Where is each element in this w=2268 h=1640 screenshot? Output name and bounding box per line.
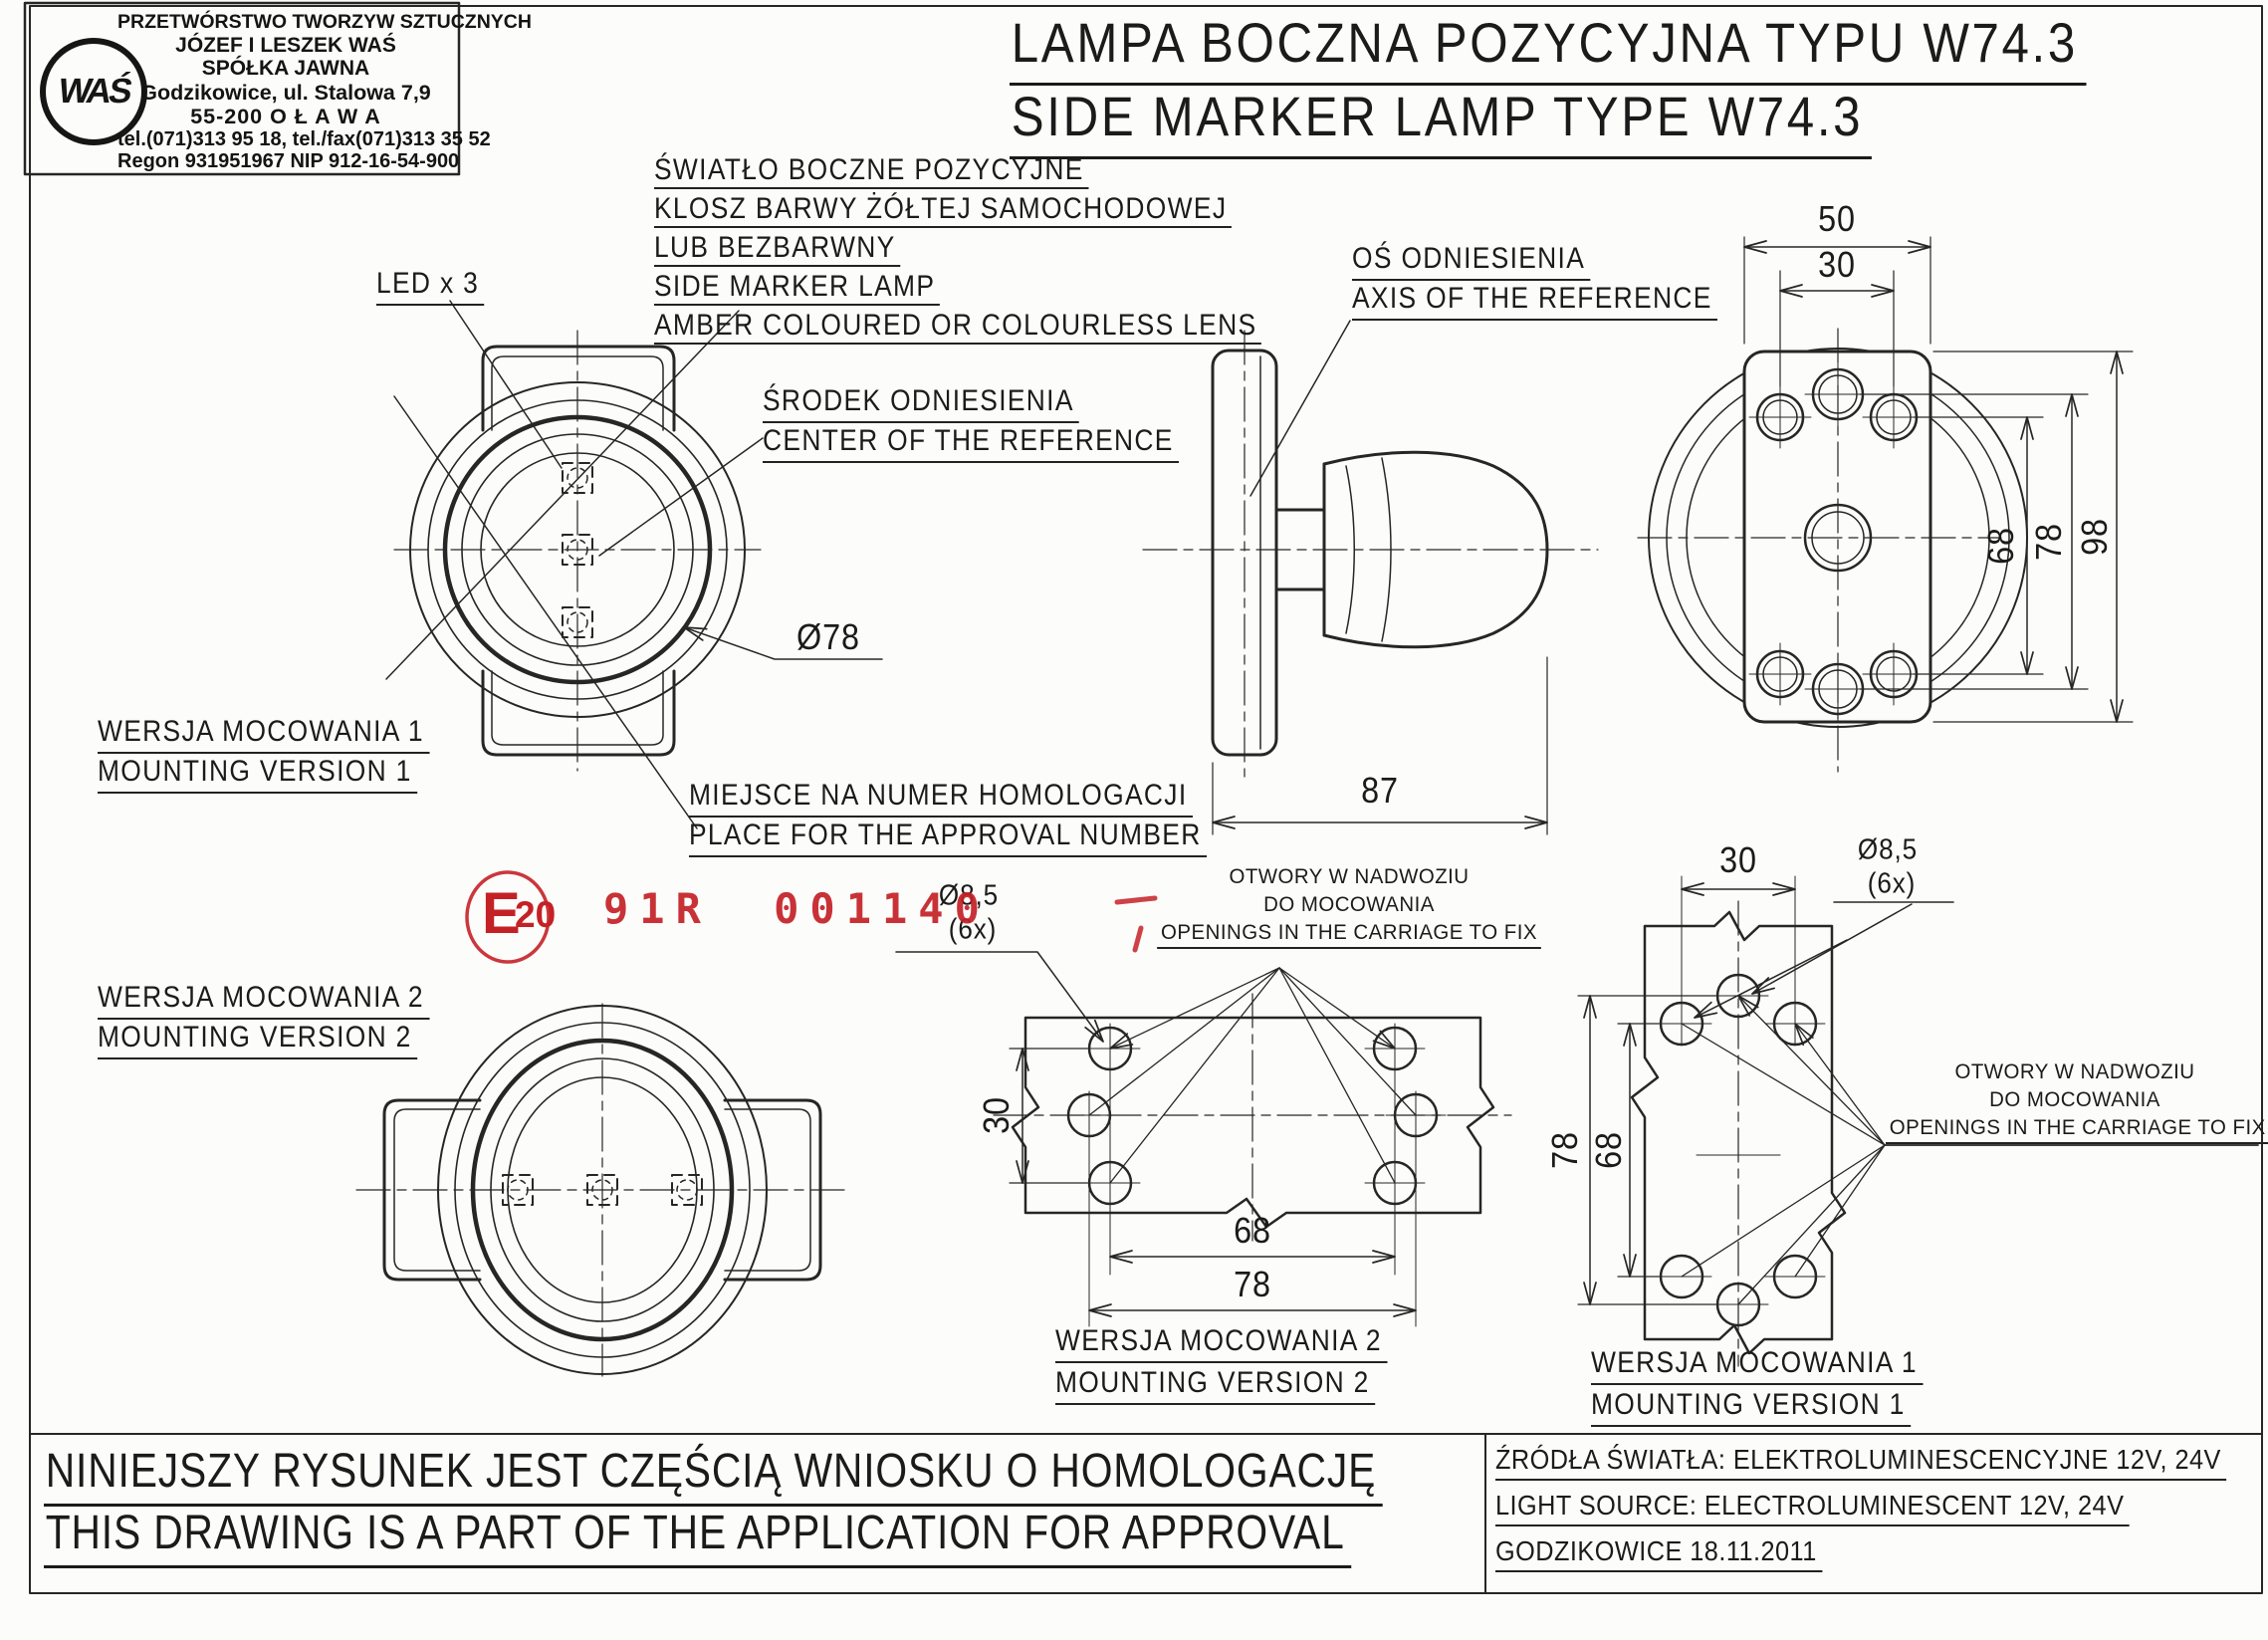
openings-v2-pl2: DO MOCOWANIA xyxy=(1155,890,1543,918)
page-title-en: SIDE MARKER LAMP TYPE W74.3 xyxy=(1010,84,1872,159)
lens-note-en2: AMBER COLOURED OR COLOURLESS LENS xyxy=(654,311,1261,345)
mounting-v1-label-pl: WERSJA MOCOWANIA 1 xyxy=(98,715,429,754)
dim-back-98: 98 xyxy=(2074,518,2116,556)
footer-light-source-en: LIGHT SOURCE: ELECTROLUMINESCENT 12V, 24… xyxy=(1495,1490,2130,1526)
footer-light-source-pl: ŹRÓDŁA ŚWIATŁA: ELEKTROLUMINESCENCYJNE 1… xyxy=(1495,1444,2226,1481)
axis-label-pl: OŚ ODNIESIENIA xyxy=(1352,242,1590,281)
footer-statement-pl: NINIEJSZY RYSUNEK JEST CZĘŚCIĄ WNIOSKU O… xyxy=(44,1444,1383,1507)
approval-place-label-en: PLACE FOR THE APPROVAL NUMBER xyxy=(689,819,1207,857)
stamp-e-number: 20 xyxy=(515,894,556,936)
company-name-line1: PRZETWÓRSTWO TWORZYW SZTUCZNYCH xyxy=(117,12,454,34)
axis-label-en: AXIS OF THE REFERENCE xyxy=(1352,282,1717,321)
mounting-v2-caption-en: MOUNTING VERSION 2 xyxy=(1055,1366,1375,1405)
company-address-line1: Godzikowice, ul. Stalowa 7,9 xyxy=(117,81,454,105)
lens-note-pl3: LUB BEZBARWNY xyxy=(654,233,900,267)
dim-side-87: 87 xyxy=(1361,770,1399,812)
mounting-v1-label-en: MOUNTING VERSION 1 xyxy=(98,755,417,794)
hole-pattern-v2 xyxy=(896,952,1511,1326)
mounting-v1-caption-pl: WERSJA MOCOWANIA 1 xyxy=(1591,1346,1923,1385)
lens-note-en1: SIDE MARKER LAMP xyxy=(654,272,940,306)
openings-label-v1: OTWORY W NADWOZIU DO MOCOWANIA OPENINGS … xyxy=(1886,1057,2264,1144)
mounting-v2-caption-pl: WERSJA MOCOWANIA 2 xyxy=(1055,1324,1387,1363)
dim-back-50: 50 xyxy=(1818,198,1856,240)
drawing-sheet: WAŚ PRZETWÓRSTWO TWORZYW SZTUCZNYCH JÓZE… xyxy=(0,0,2268,1640)
front-view-v2 xyxy=(356,1004,848,1376)
dim-v1-count: (6x) xyxy=(1868,868,1917,901)
dim-v1-30: 30 xyxy=(1719,839,1757,881)
mounting-v2-label-en: MOUNTING VERSION 2 xyxy=(98,1021,417,1059)
center-label-pl: ŚRODEK ODNIESIENIA xyxy=(763,384,1079,423)
openings-v1-pl2: DO MOCOWANIA xyxy=(1886,1085,2264,1113)
lens-note: ŚWIATŁO BOCZNE POZYCYJNE KLOSZ BARWY ŻÓŁ… xyxy=(654,155,1261,350)
company-info: PRZETWÓRSTWO TWORZYW SZTUCZNYCH JÓZEF I … xyxy=(117,12,454,173)
dim-back-68: 68 xyxy=(1980,527,2022,565)
footer-statement-en: THIS DRAWING IS A PART OF THE APPLICATIO… xyxy=(44,1506,1351,1568)
leader-fan-v1 xyxy=(1682,996,2258,1304)
dim-back-78: 78 xyxy=(2028,523,2070,561)
company-name-line3: SPÓŁKA JAWNA xyxy=(117,57,454,81)
company-name-line2: JÓZEF I LESZEK WAŚ xyxy=(117,34,454,58)
openings-v1-pl1: OTWORY W NADWOZIU xyxy=(1886,1057,2264,1085)
stamp-approval-code: 91R 001140 xyxy=(603,884,991,933)
company-address-line2: 55-200 O Ł A W A xyxy=(117,105,454,128)
mounting-v1-caption-en: MOUNTING VERSION 1 xyxy=(1591,1388,1911,1427)
company-phone: tel.(071)313 95 18, tel./fax(071)313 35 … xyxy=(117,128,454,150)
led-label: LED x 3 xyxy=(376,267,484,306)
company-ids: Regon 931951967 NIP 912-16-54-900 xyxy=(117,150,454,172)
openings-v1-en: OPENINGS IN THE CARRIAGE TO FIX xyxy=(1886,1113,2268,1144)
dim-v2-30: 30 xyxy=(976,1096,1018,1134)
openings-label-v2: OTWORY W NADWOZIU DO MOCOWANIA OPENINGS … xyxy=(1155,862,1543,949)
page-title-pl: LAMPA BOCZNA POZYCYJNA TYPU W74.3 xyxy=(1010,10,2087,86)
mounting-v2-label-pl: WERSJA MOCOWANIA 2 xyxy=(98,981,429,1020)
center-label-en: CENTER OF THE REFERENCE xyxy=(763,424,1179,463)
dim-v2-68: 68 xyxy=(1234,1210,1271,1252)
dim-v1-68: 68 xyxy=(1588,1131,1630,1169)
lens-note-pl2: KLOSZ BARWY ŻÓŁTEJ SAMOCHODOWEJ xyxy=(654,194,1232,228)
dim-v1-dia85: Ø8,5 xyxy=(1858,834,1918,867)
side-view xyxy=(1143,321,1598,834)
dim-v1-78: 78 xyxy=(1544,1131,1586,1169)
openings-v2-pl1: OTWORY W NADWOZIU xyxy=(1155,862,1543,890)
approval-place-label-pl: MIEJSCE NA NUMER HOMOLOGACJI xyxy=(689,779,1193,818)
openings-v2-en: OPENINGS IN THE CARRIAGE TO FIX xyxy=(1157,918,1541,949)
front-view-v1 xyxy=(386,301,882,828)
dim-v2-78: 78 xyxy=(1234,1264,1271,1305)
footer-place-date: GODZIKOWICE 18.11.2011 xyxy=(1495,1535,1822,1572)
lens-note-pl1: ŚWIATŁO BOCZNE POZYCYJNE xyxy=(654,155,1088,189)
dim-back-30: 30 xyxy=(1818,244,1856,286)
dim-front-dia78: Ø78 xyxy=(796,616,860,658)
